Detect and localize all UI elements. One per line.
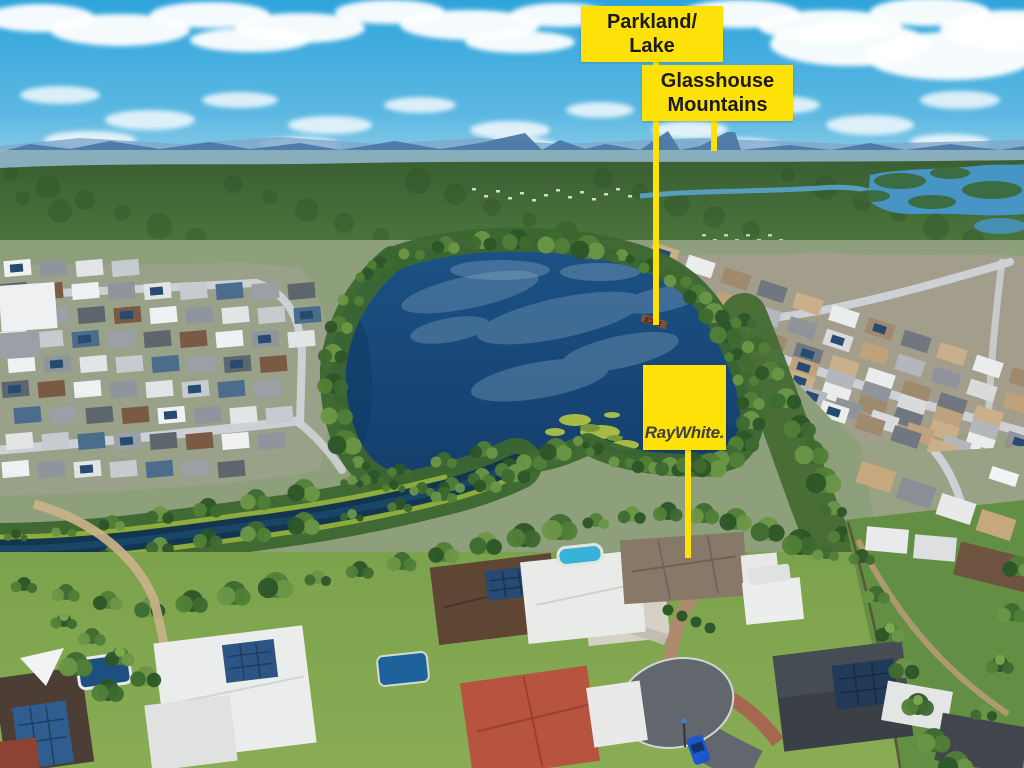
callout-mountains-line2: Mountains	[642, 93, 793, 117]
landscape-scene	[0, 0, 1024, 768]
callout-parkland-lake: Parkland/ Lake	[581, 6, 723, 62]
brand-logo-text: RayWhite.	[645, 423, 724, 443]
pointer-line-glasshouse-mountains	[711, 120, 717, 151]
aerial-photo: Parkland/ Lake Glasshouse Mountains RayW…	[0, 0, 1024, 768]
callout-parkland-line1: Parkland/	[581, 10, 723, 34]
callout-glasshouse-mountains: Glasshouse Mountains	[642, 65, 793, 121]
pointer-line-subject-property	[685, 448, 691, 558]
brand-tag-raywhite: RayWhite.	[643, 365, 726, 450]
callout-parkland-line2: Lake	[581, 34, 723, 58]
street-exit	[704, 742, 754, 768]
subject-property-roof	[620, 532, 748, 604]
callout-mountains-line1: Glasshouse	[642, 69, 793, 93]
commercial-roof	[0, 282, 58, 332]
commercial-roof-2	[0, 331, 41, 360]
